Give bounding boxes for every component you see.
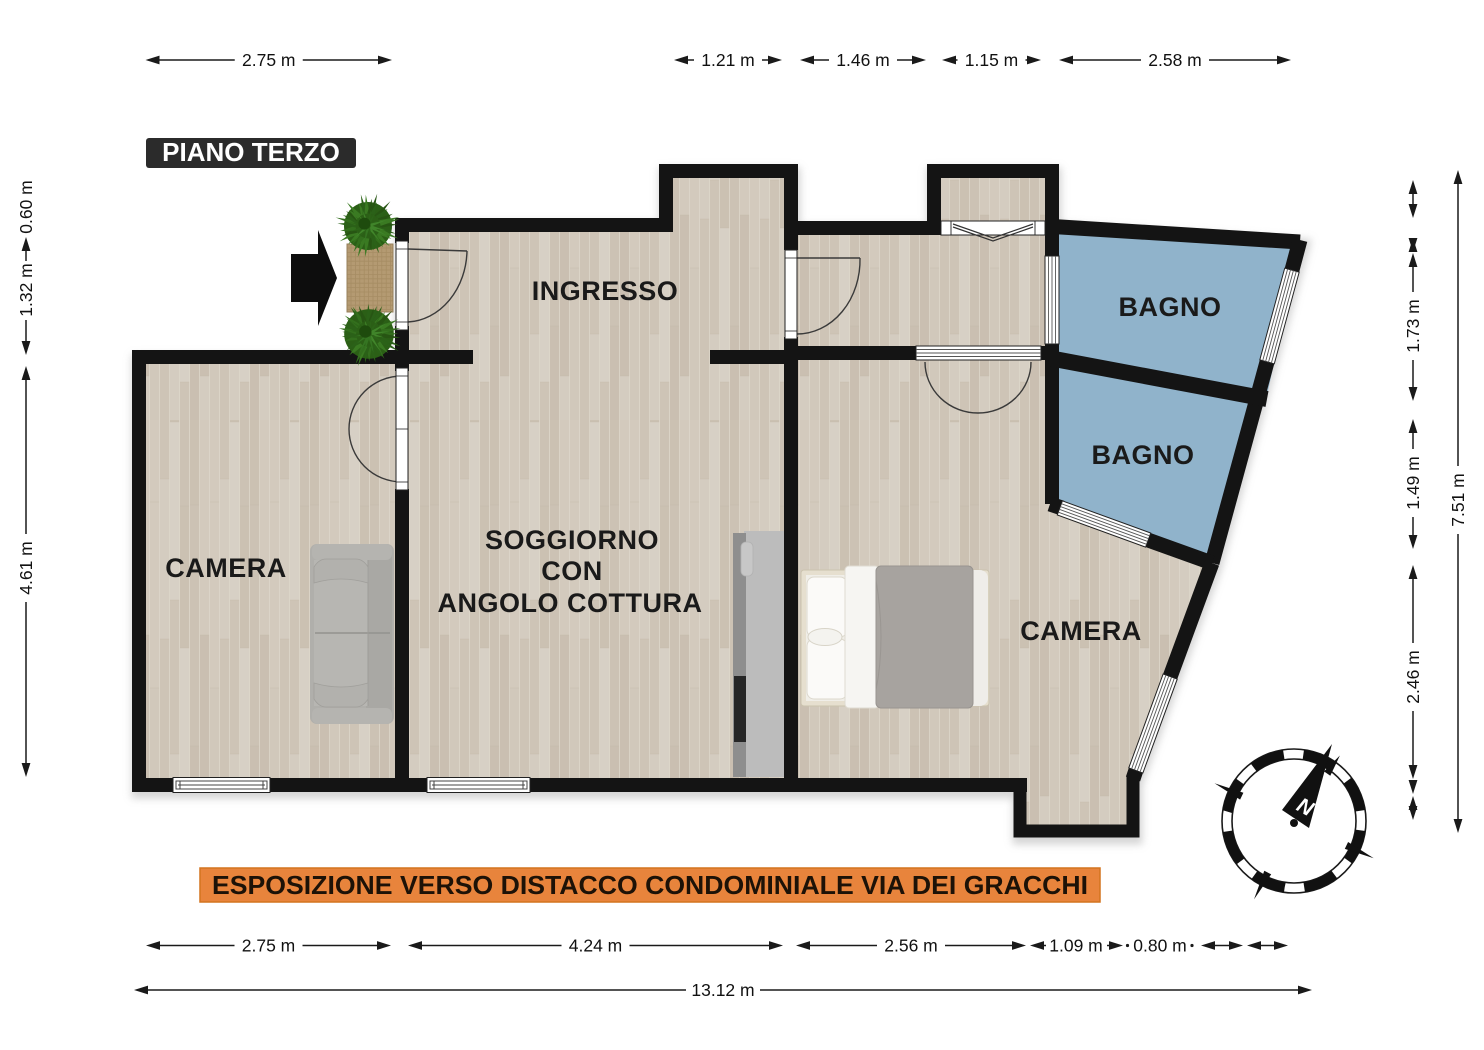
svg-text:1.46 m: 1.46 m bbox=[836, 50, 890, 70]
svg-text:CON: CON bbox=[541, 556, 603, 586]
svg-text:7.51 m: 7.51 m bbox=[1448, 473, 1468, 527]
svg-text:BAGNO: BAGNO bbox=[1092, 440, 1195, 470]
svg-text:0.60 m: 0.60 m bbox=[16, 180, 36, 234]
svg-text:13.12 m: 13.12 m bbox=[691, 980, 754, 1000]
svg-text:SOGGIORNO: SOGGIORNO bbox=[485, 525, 659, 555]
svg-text:4.24 m: 4.24 m bbox=[569, 936, 623, 956]
svg-text:2.75 m: 2.75 m bbox=[242, 936, 296, 956]
svg-text:CAMERA: CAMERA bbox=[165, 553, 287, 583]
svg-text:2.58 m: 2.58 m bbox=[1148, 50, 1202, 70]
svg-text:1.49 m: 1.49 m bbox=[1403, 456, 1423, 510]
svg-text:2.75 m: 2.75 m bbox=[242, 50, 296, 70]
svg-text:1.09 m: 1.09 m bbox=[1049, 936, 1103, 956]
svg-text:1.21 m: 1.21 m bbox=[701, 50, 755, 70]
svg-text:1.32 m: 1.32 m bbox=[16, 263, 36, 317]
svg-text:4.61 m: 4.61 m bbox=[16, 541, 36, 595]
svg-text:ANGOLO COTTURA: ANGOLO COTTURA bbox=[438, 588, 703, 618]
svg-text:CAMERA: CAMERA bbox=[1020, 616, 1142, 646]
svg-text:BAGNO: BAGNO bbox=[1119, 292, 1222, 322]
svg-text:0.80 m: 0.80 m bbox=[1133, 936, 1187, 956]
svg-text:2.56 m: 2.56 m bbox=[884, 936, 938, 956]
svg-text:1.15 m: 1.15 m bbox=[965, 50, 1019, 70]
svg-text:ESPOSIZIONE VERSO DISTACCO CON: ESPOSIZIONE VERSO DISTACCO CONDOMINIALE … bbox=[212, 870, 1088, 900]
svg-text:2.46 m: 2.46 m bbox=[1403, 650, 1423, 704]
svg-text:1.73 m: 1.73 m bbox=[1403, 299, 1423, 353]
svg-text:INGRESSO: INGRESSO bbox=[532, 276, 679, 306]
svg-text:PIANO TERZO: PIANO TERZO bbox=[162, 137, 340, 167]
